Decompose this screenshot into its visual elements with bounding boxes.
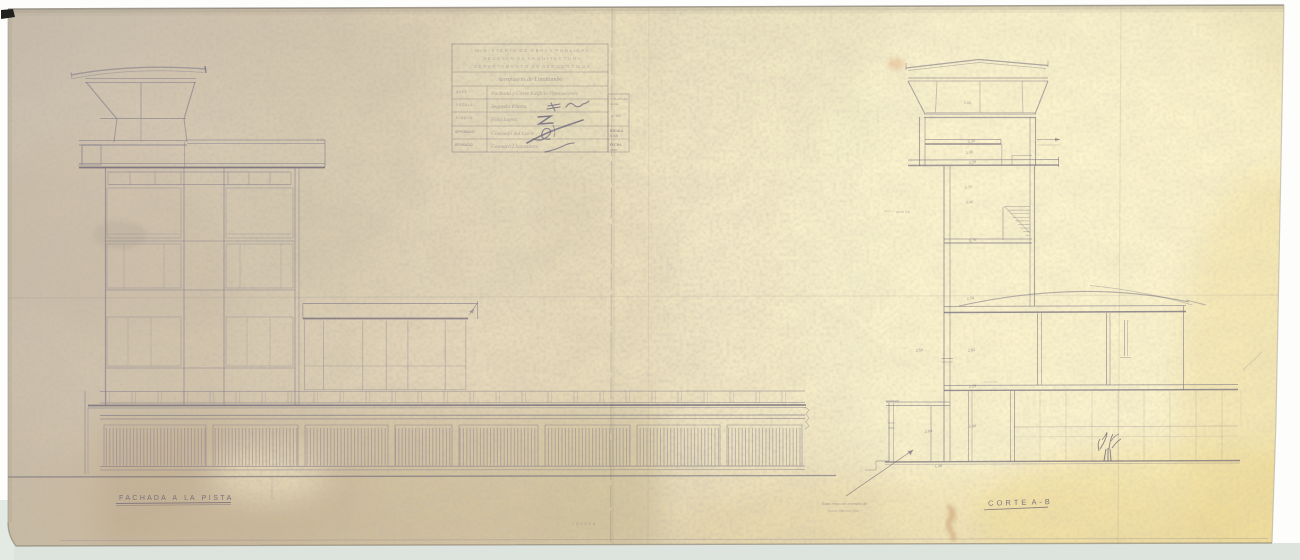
svg-text:del dia: del dia: [610, 102, 619, 106]
svg-text:Aeropuerto de Limatambo: Aeropuerto de Limatambo: [496, 76, 562, 83]
svg-text:ajuste exterior fino: ajuste exterior fino: [828, 508, 858, 513]
svg-text:2.05: 2.05: [964, 101, 971, 105]
svg-text:ESCALA: ESCALA: [610, 129, 624, 133]
svg-text:Estas rejas con inversión de: Estas rejas con inversión de: [821, 501, 867, 506]
svg-text:A 4 0 5: A 4 0 5: [456, 90, 467, 94]
svg-text:E S C A L A: E S C A L A: [456, 103, 473, 107]
svg-text:1950: 1950: [610, 148, 617, 152]
svg-text:C O R T E A - B: C O R T E A - B: [988, 497, 1051, 508]
svg-text:1.10: 1.10: [317, 138, 324, 142]
svg-text:F A C H A D A A L A P I: F A C H A D A A L A P I S T A: [119, 495, 232, 502]
svg-text:A 405: A 405: [610, 134, 618, 138]
svg-text:escalerilla: escalerilla: [983, 380, 998, 384]
svg-text:Nota Lopez: Nota Lopez: [490, 117, 517, 123]
svg-text:D I B U J O: D I B U J O: [456, 116, 473, 120]
svg-text:Gennaro Llamazares: Gennaro Llamazares: [491, 144, 538, 150]
svg-text:S E C C I O N D E A R Q U I: S E C C I O N D E A R Q U I T E C T U R …: [483, 56, 581, 61]
svg-text:M I N I S T E R I O D E O B: M I N I S T E R I O D E O B R A S P U B …: [475, 48, 589, 53]
svg-text:REVISADO: REVISADO: [455, 143, 473, 147]
svg-text:APROBADO: APROBADO: [455, 130, 475, 134]
svg-text:N° 450: N° 450: [611, 114, 621, 118]
svg-text:Consuelo del Corte: Consuelo del Corte: [491, 131, 535, 137]
svg-text:FECHA: FECHA: [610, 143, 622, 147]
svg-text:~ aprox 4 m.: ~ aprox 4 m.: [893, 210, 911, 214]
svg-text:Segunda Planta: Segunda Planta: [491, 104, 527, 110]
svg-text:c a s a s a: c a s a s a: [572, 521, 596, 526]
svg-text:V° PULGADA: V° PULGADA: [610, 97, 628, 101]
svg-text:D E P A R T A M E N T O D E: D E P A R T A M E N T O D E A E R O D R …: [474, 64, 590, 69]
svg-text:Fachada y Corte Edificio Opera: Fachada y Corte Edificio Operaciones: [490, 90, 578, 97]
